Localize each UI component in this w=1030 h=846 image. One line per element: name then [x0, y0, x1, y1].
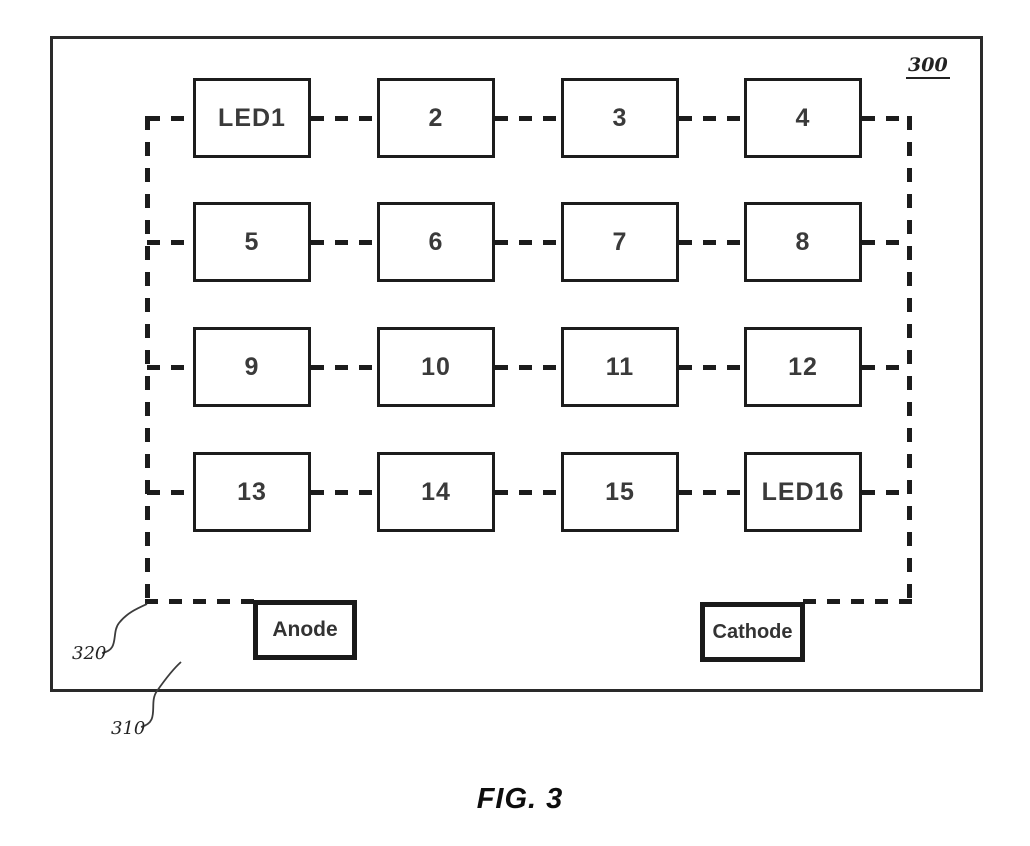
led-label: 9	[245, 353, 260, 382]
wire-tap-right-row2	[862, 240, 908, 245]
figure-canvas: 300 LED1 2 3 4 5 6 7 8 9 10 11 12 13 14 …	[0, 0, 1030, 846]
cathode-terminal: Cathode	[700, 602, 805, 662]
led-label: 11	[606, 353, 634, 382]
wire-tap-left-row1	[147, 116, 193, 121]
anode-feed-wire	[145, 599, 255, 604]
wire-segment	[311, 365, 377, 370]
anode-terminal: Anode	[253, 600, 357, 660]
led-box-16: LED16	[744, 452, 862, 532]
wire-segment	[495, 240, 561, 245]
cathode-label: Cathode	[713, 621, 793, 644]
led-label: LED16	[762, 478, 845, 507]
led-box-9: 9	[193, 327, 311, 407]
wire-segment	[495, 365, 561, 370]
led-label: 14	[421, 478, 451, 507]
figure-caption: FIG. 3	[400, 783, 640, 816]
led-label: 5	[245, 228, 260, 257]
right-bus-wire	[907, 116, 912, 604]
led-box-4: 4	[744, 78, 862, 158]
left-bus-wire	[145, 116, 150, 604]
led-label: 8	[796, 228, 811, 257]
wire-segment	[679, 240, 744, 245]
led-label: 6	[429, 228, 444, 257]
led-box-14: 14	[377, 452, 495, 532]
led-box-1: LED1	[193, 78, 311, 158]
led-box-3: 3	[561, 78, 679, 158]
wire-segment	[495, 490, 561, 495]
callout-320-label: 320	[72, 643, 106, 664]
led-label: 4	[796, 104, 811, 133]
led-label: 15	[605, 478, 635, 507]
wire-tap-left-row4	[147, 490, 193, 495]
led-label: 3	[613, 104, 628, 133]
led-label: 10	[421, 353, 451, 382]
led-box-5: 5	[193, 202, 311, 282]
callout-310-label: 310	[111, 718, 145, 739]
led-box-11: 11	[561, 327, 679, 407]
led-box-13: 13	[193, 452, 311, 532]
led-label: 13	[237, 478, 267, 507]
led-label: 12	[788, 353, 818, 382]
wire-segment	[311, 490, 377, 495]
wire-segment	[679, 116, 744, 121]
wire-segment	[679, 365, 744, 370]
led-box-7: 7	[561, 202, 679, 282]
wire-segment	[495, 116, 561, 121]
wire-segment	[311, 116, 377, 121]
wire-tap-left-row3	[147, 365, 193, 370]
cathode-feed-wire	[803, 599, 912, 604]
led-box-8: 8	[744, 202, 862, 282]
led-box-15: 15	[561, 452, 679, 532]
wire-segment	[679, 490, 744, 495]
wire-tap-right-row1	[862, 116, 908, 121]
led-box-6: 6	[377, 202, 495, 282]
led-box-12: 12	[744, 327, 862, 407]
led-box-10: 10	[377, 327, 495, 407]
led-label: LED1	[218, 104, 286, 133]
reference-label-300: 300	[906, 54, 950, 79]
wire-tap-right-row4	[862, 490, 908, 495]
led-box-2: 2	[377, 78, 495, 158]
wire-tap-right-row3	[862, 365, 908, 370]
wire-segment	[311, 240, 377, 245]
led-label: 2	[429, 104, 444, 133]
led-label: 7	[613, 228, 628, 257]
wire-tap-left-row2	[147, 240, 193, 245]
anode-label: Anode	[272, 618, 337, 642]
